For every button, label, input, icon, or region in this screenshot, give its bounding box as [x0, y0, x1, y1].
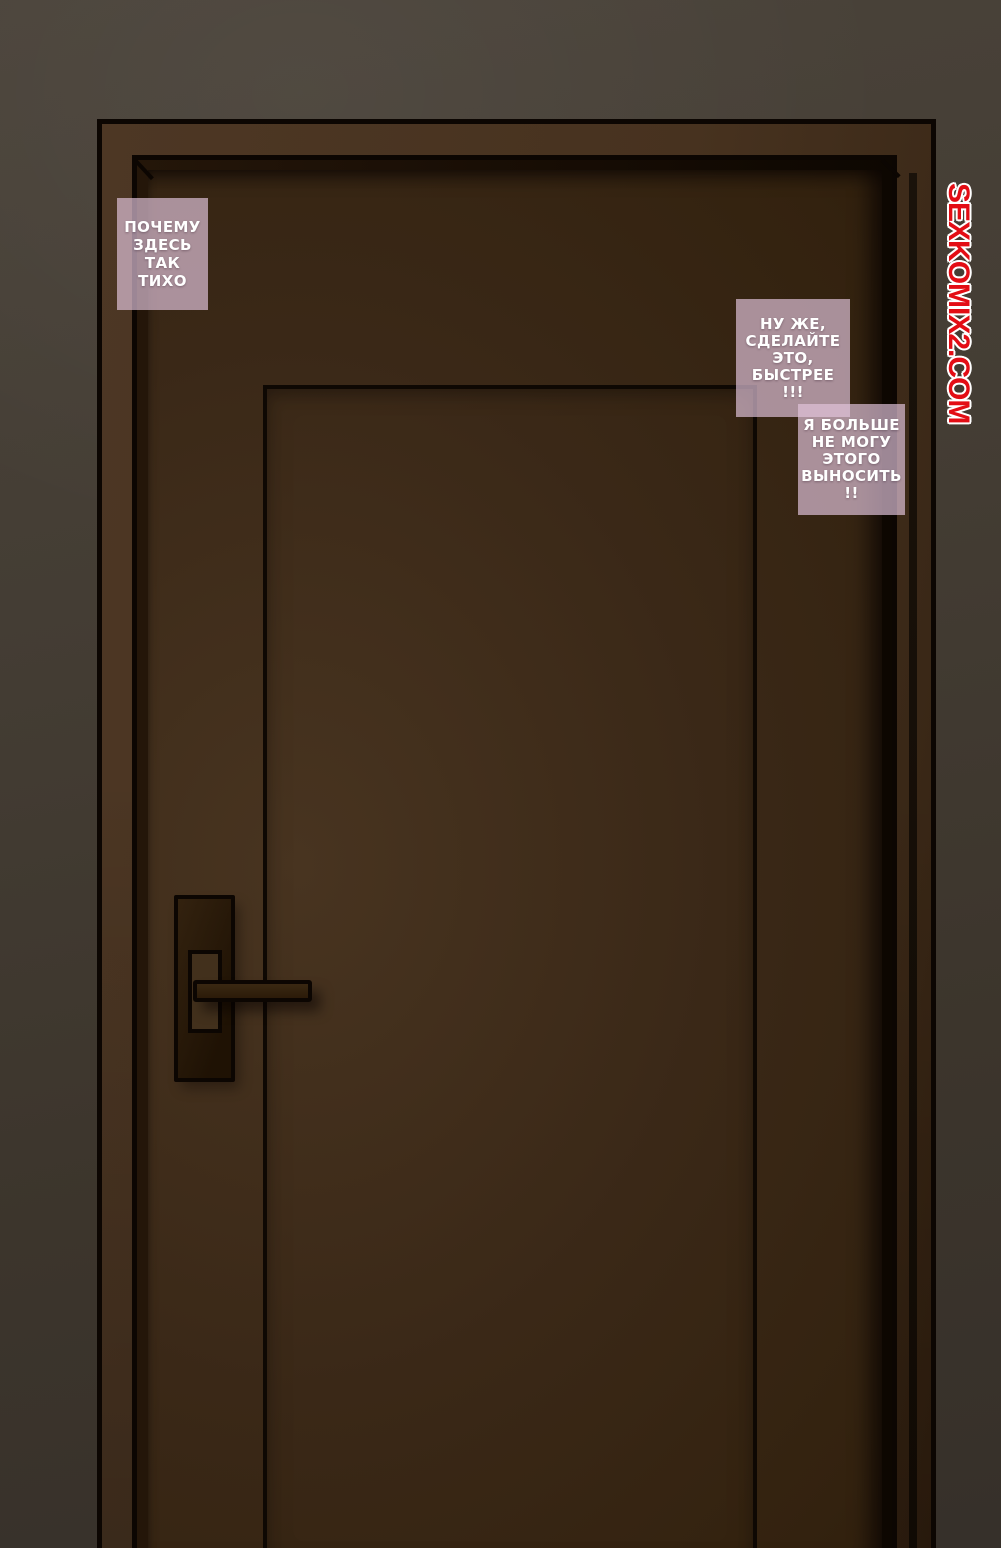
watermark-text: SEXKOMIX2.COM [941, 183, 975, 423]
comic-panel: ПОЧЕМУ ЗДЕСЬ ТАК ТИХО НУ ЖЕ, СДЕЛАЙТЕ ЭТ… [0, 0, 1001, 1548]
bubble-line: НЕ МОГУ [812, 434, 892, 451]
door-handle-lever [193, 980, 312, 1002]
speech-bubble-why-quiet: ПОЧЕМУ ЗДЕСЬ ТАК ТИХО [117, 198, 208, 310]
bubble-line: ПОЧЕМУ [124, 218, 201, 236]
bubble-line: ТИХО [138, 272, 187, 290]
bubble-line: ВЫНОСИТЬ [801, 468, 902, 485]
speech-bubble-cant-stand-it: Я БОЛЬШЕ НЕ МОГУ ЭТОГО ВЫНОСИТЬ !! [798, 404, 905, 515]
speech-bubble-do-it-faster: НУ ЖЕ, СДЕЛАЙТЕ ЭТО, БЫСТРЕЕ !!! [736, 299, 850, 417]
bubble-line: ЭТОГО [822, 451, 880, 468]
bubble-line: !!! [782, 384, 804, 401]
bubble-line: Я БОЛЬШЕ [803, 417, 900, 434]
bubble-line: ТАК [145, 254, 180, 272]
bubble-line: БЫСТРЕЕ [752, 367, 835, 384]
door-frame-groove [909, 173, 917, 1548]
door-recessed-panel [263, 385, 757, 1548]
bubble-line: СДЕЛАЙТЕ [746, 333, 841, 350]
bubble-line: ЭТО, [772, 350, 813, 367]
bubble-line: !! [844, 485, 858, 502]
bubble-line: ЗДЕСЬ [133, 236, 192, 254]
bubble-line: НУ ЖЕ, [760, 316, 826, 333]
